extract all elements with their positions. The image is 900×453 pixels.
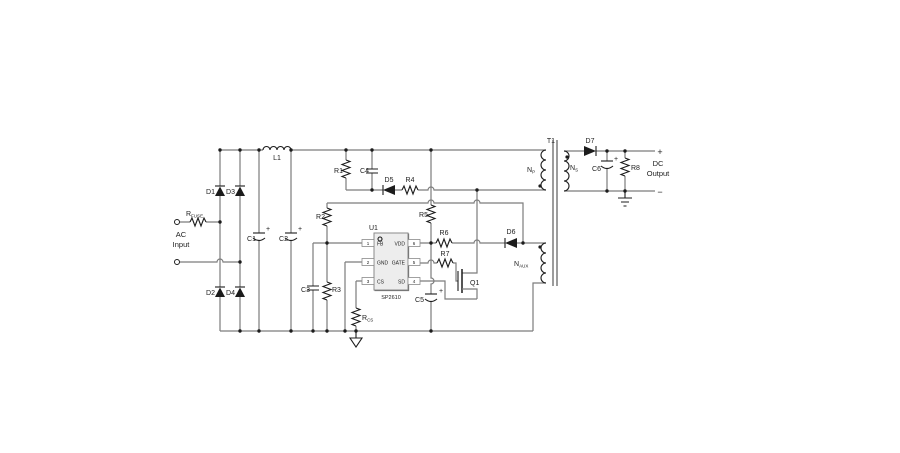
ac-terminal-top (175, 220, 180, 225)
resistor-r1-symbol (342, 160, 350, 178)
junction-dot (257, 329, 260, 332)
aux-winding-symbol (541, 243, 546, 283)
resistor-r2-label: R2 (316, 214, 325, 221)
junction-dot (605, 149, 608, 152)
junction-dot (343, 329, 346, 332)
resistor-r1-label: R1 (334, 168, 343, 175)
junction-dot (218, 148, 221, 151)
diode-d4-label: D4 (226, 290, 235, 297)
junction-dot (311, 329, 314, 332)
junction-dot (370, 188, 373, 191)
junction-dot (289, 148, 292, 151)
diode-d3-label: D3 (226, 189, 235, 196)
fuse-resistor-symbol (190, 218, 206, 226)
fuse-resistor-label: RFUSE (186, 211, 203, 219)
resistor-r5-label: R5 (419, 212, 428, 219)
junction-dot (623, 189, 626, 192)
junction-dot (325, 329, 328, 332)
junction-dot (429, 148, 432, 151)
junction-dot (370, 148, 373, 151)
resistor-rcs-label: RCS (362, 315, 373, 323)
capacitor-c6-label: C6 (592, 166, 601, 173)
output-label-line1: DC (653, 159, 664, 168)
resistor-r7-symbol (437, 259, 453, 267)
ac-label-line2: Input (173, 240, 191, 249)
transformer-core (553, 140, 557, 286)
diode-d3-symbol (235, 186, 245, 196)
output-minus-sign: − (657, 187, 662, 197)
junction-dot (325, 241, 328, 244)
ac-label-line1: AC (176, 230, 187, 239)
junction-dot (475, 188, 478, 191)
ic-pin-label-gnd: GND (377, 261, 389, 267)
inductor-l1-label: L1 (273, 155, 281, 162)
junction-dot (623, 149, 626, 152)
wire-aux-return (533, 283, 546, 331)
capacitor-c5-plus: + (439, 288, 443, 295)
resistor-r4-label: R4 (406, 177, 415, 184)
resistor-r8-label: R8 (631, 165, 640, 172)
ic-ref-label: U1 (369, 225, 378, 232)
controller-ic: 1 2 3 6 5 4 FB GND CS VDD GATE SD U1 SP2… (362, 225, 420, 301)
mosfet-q1-label: Q1 (470, 280, 479, 287)
secondary-phase-dot (565, 155, 568, 158)
wire-gnd-net (345, 262, 362, 331)
capacitor-c5-label: C5 (415, 297, 424, 304)
diode-d1-symbol (215, 186, 225, 196)
resistor-r3-label: R3 (332, 287, 341, 294)
capacitor-c6-plus: + (614, 156, 618, 163)
ic-part-number: SP2610 (381, 295, 401, 301)
diode-d2-label: D2 (206, 290, 215, 297)
wire-vdd-startup (431, 150, 434, 331)
junction-dot (429, 241, 432, 244)
capacitor-c5-symbol (425, 294, 437, 302)
junction-dot (344, 148, 347, 151)
resistor-r4-symbol (402, 186, 418, 194)
feedback-divider: R2 C3 R3 (301, 208, 341, 300)
resistor-r6-symbol (436, 239, 452, 247)
primary-ground-icon (350, 331, 362, 347)
resistor-r7-label: R7 (441, 251, 450, 258)
resistor-rcs-symbol (352, 308, 360, 326)
primary-winding-symbol (541, 150, 546, 190)
diode-d5-label: D5 (385, 177, 394, 184)
secondary-winding-label: NS (570, 165, 578, 173)
junction-dot (429, 329, 432, 332)
wire-aux-sense-net (327, 200, 523, 243)
resistor-r8-symbol (621, 158, 629, 176)
wire-gate-net (420, 260, 458, 281)
aux-phase-dot (538, 245, 541, 248)
junction-dot (238, 148, 241, 151)
junction-dot (354, 329, 357, 332)
diode-d6-label: D6 (507, 229, 516, 236)
output-plus-sign: + (657, 147, 662, 157)
diode-d7-label: D7 (586, 138, 595, 145)
earth-ground-icon (618, 191, 632, 206)
transformer-ref-label: T1 (547, 138, 555, 145)
ic-pin-label-cs: CS (377, 280, 385, 286)
diode-d6-symbol (505, 238, 517, 248)
diode-d4-symbol (235, 287, 245, 297)
ic-pin-label-vdd: VDD (394, 242, 405, 248)
transformer-t1: T1 NP NS NAUX (514, 138, 578, 286)
diode-d5-symbol (383, 185, 395, 195)
mosfet-source-stub (462, 289, 477, 299)
capacitor-c1-plus: + (266, 226, 270, 233)
capacitor-c2-plus: + (298, 226, 302, 233)
resistor-r3-symbol (323, 282, 331, 300)
resistor-r5-symbol (427, 205, 435, 223)
schematic-canvas: AC Input RFUSE D1 D3 D2 D4 L1 C1 + (0, 0, 900, 453)
inductor-l1-symbol (263, 147, 291, 151)
primary-winding-label: NP (527, 167, 535, 175)
output-stage: D7 C6 + R8 + DC Output − (584, 138, 670, 206)
capacitor-c2-label: C2 (279, 236, 288, 243)
resistor-r6-label: R6 (440, 230, 449, 237)
ic-pin-label-sd: SD (398, 280, 405, 286)
junction-dot (238, 329, 241, 332)
capacitor-c4-label: C4 (360, 168, 369, 175)
junction-dot (238, 260, 241, 263)
bridge-rectifier: D1 D3 D2 D4 (206, 186, 245, 297)
wire-ac-neutral (180, 259, 240, 262)
wire-source-net (420, 281, 477, 299)
ac-input-source: AC Input RFUSE (173, 211, 206, 265)
diode-d1-label: D1 (206, 189, 215, 196)
input-filter: L1 C1 + C2 + (247, 147, 302, 244)
junction-dot (218, 220, 221, 223)
ic-pin-label-gate: GATE (392, 261, 406, 267)
ac-terminal-bottom (175, 260, 180, 265)
ic-pin-label-fb: FB (377, 242, 384, 248)
capacitor-c1-label: C1 (247, 236, 256, 243)
junction-dot (605, 189, 608, 192)
capacitor-c6-symbol (601, 161, 613, 169)
output-label-line2: Output (647, 169, 670, 178)
aux-winding-label: NAUX (514, 261, 528, 269)
diode-d7-symbol (584, 146, 596, 156)
junction-dot (289, 329, 292, 332)
capacitor-c3-label: C3 (301, 287, 310, 294)
wire-snubber-net (346, 187, 546, 190)
junction-dot (257, 148, 260, 151)
primary-phase-dot (538, 184, 541, 187)
wire-cs-net (356, 281, 362, 331)
junction-dot (521, 241, 524, 244)
diode-d2-symbol (215, 287, 225, 297)
